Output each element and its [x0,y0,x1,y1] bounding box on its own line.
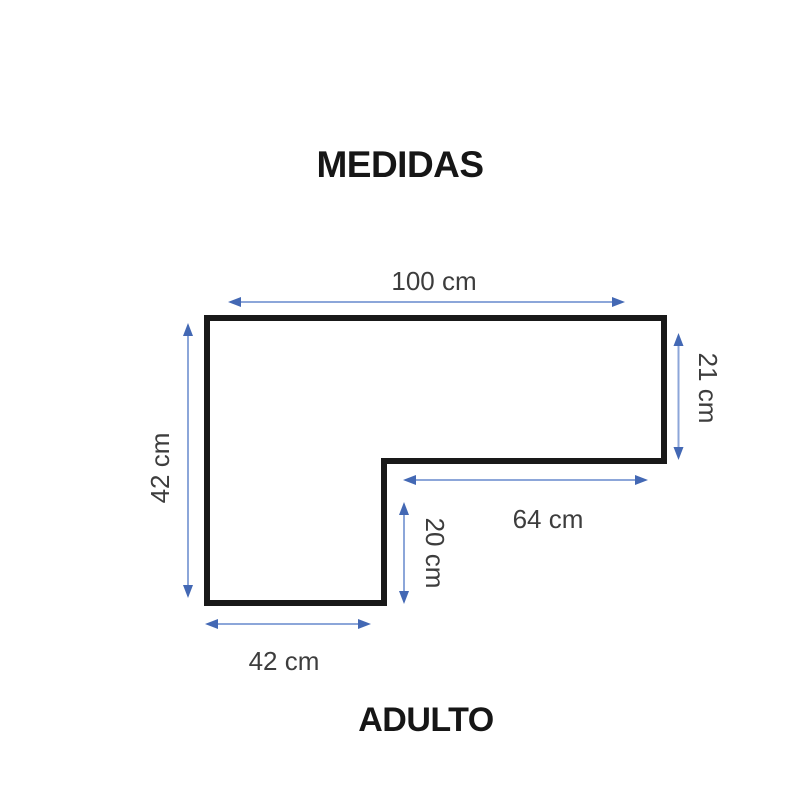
svg-text:20 cm: 20 cm [420,518,450,589]
svg-text:21 cm: 21 cm [693,353,723,424]
svg-text:64 cm: 64 cm [513,504,584,534]
svg-text:42 cm: 42 cm [249,646,320,676]
svg-text:100 cm: 100 cm [391,266,476,296]
svg-text:ADULTO: ADULTO [358,701,494,739]
svg-text:42 cm: 42 cm [145,433,175,504]
svg-text:MEDIDAS: MEDIDAS [316,144,483,185]
